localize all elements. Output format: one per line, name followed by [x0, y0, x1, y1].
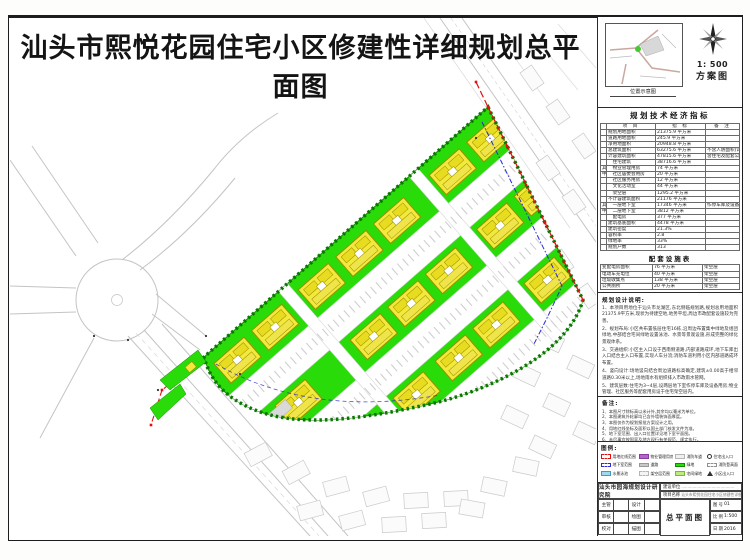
design-note: 4、竖向设计:场地竖向结合周边道路标高确定,建筑±0.00高于相邻道路0.30米… — [602, 369, 738, 382]
design-notes-section: 规划设计说明: 1、本项目用地位于汕头市龙湖区,东北侧临规划路,规划总用地面积2… — [598, 293, 742, 397]
legend-swatch — [601, 463, 611, 468]
sheet-title: 汕头市熙悦花园住宅小区修建性详细规划总平面图 — [18, 26, 583, 104]
project-value: 汕头市熙悦花园住宅小区修建性详细规划 — [681, 492, 741, 498]
field-row: 图 号 01 — [710, 499, 742, 511]
legend-item: 物业管理用房 — [639, 454, 673, 460]
site-location-dot — [635, 46, 641, 52]
field-row: 比 例 1:500 — [710, 511, 742, 523]
legend-item: 绿地 — [675, 462, 705, 468]
legend-label: 地下室范围 — [613, 462, 632, 468]
indicators-section: 规划技术经济指标 项 目 指 标 备 注 规划用地面积 21375.9 平方米 — [598, 108, 742, 293]
signature-row: 校对 描图 — [598, 523, 660, 535]
remarks-title: 备注: — [602, 399, 738, 407]
legend-label: 小区出入口 — [715, 471, 734, 477]
legend-label: 宅间绿地 — [687, 471, 703, 477]
legend-item: 消防车道 — [675, 454, 705, 460]
compass-icon — [698, 22, 728, 58]
legend-item: 宅间绿地 — [675, 471, 705, 477]
legend-label: 架空层范围 — [651, 471, 670, 477]
drawing-name: 总平面图 — [660, 499, 710, 536]
signature-row: 审核 绘图 — [598, 511, 660, 523]
legend-swatch — [675, 463, 685, 468]
roundabout — [76, 259, 158, 341]
owner-row: 建设单位 …………………………………… — [660, 483, 742, 491]
location-section: 位置示意图 1: 500 方案图 — [598, 17, 742, 108]
project-row: 项目名称 汕头市熙悦花园住宅小区修建性详细规划 — [660, 491, 742, 499]
legend-swatch — [639, 463, 649, 468]
indicator-row: 计容建筑面积 47815.6 平方米 含住宅及配套公建 详见说明 — [601, 153, 740, 159]
title-block: 汕头市园海规划设计研究院 建设单位 …………………………………… 项目名称 汕头… — [598, 483, 742, 536]
field-row: 日 期 2016 — [710, 523, 742, 535]
legend-swatch — [675, 471, 685, 476]
indicator-row: 规划户数 313 — [601, 245, 740, 251]
facilities-title: 配套设施表 — [600, 251, 740, 264]
minimap-caption: 位置示意图 — [610, 88, 676, 97]
legend-title: 图例: — [601, 444, 739, 452]
legend-item: 用地红线范围 — [601, 454, 637, 460]
legend-swatch — [707, 463, 717, 468]
legend-swatch — [639, 471, 649, 476]
legend-item: 道路 — [639, 462, 673, 468]
design-note: 5、建筑层数:住宅为3~4层,设两层地下室作停车库及设备用房;物业管理、社区服务… — [602, 384, 738, 397]
facilities-table: 变配电房面积 76 平方米 架空层 电动车充电位 40 平方米 架空层 垃圾收集… — [600, 264, 740, 289]
drawing-scale: 1: 500 — [697, 60, 728, 69]
legend-label: 用地红线范围 — [613, 454, 636, 460]
legend-item: 住宅出入口 — [707, 454, 741, 460]
right-panel: 位置示意图 1: 500 方案图 规划技术经济指标 项 目 指 标 — [597, 17, 742, 536]
legend-swatch — [601, 471, 611, 476]
signature-row: 主管 设计 — [598, 499, 660, 511]
indicators-title: 规划技术经济指标 — [600, 109, 740, 123]
design-note: 2、规划布局:小区共布置低层住宅16栋,沿周边布置集中绿地及组团绿地,中部结合宅… — [602, 327, 738, 346]
legend-section: 图例: 用地红线范围 物业管理用房 消防车道 — [598, 442, 742, 483]
legend-swatch — [707, 454, 712, 459]
legend-label: 消防登高面 — [719, 462, 738, 468]
legend-label: 道路 — [651, 462, 659, 468]
facility-row: 公共厕所 20 平方米 架空层 — [601, 283, 740, 289]
entrance-area — [150, 350, 206, 420]
legend-item: 地下室范围 — [601, 462, 637, 468]
legend-label: 物业管理用房 — [651, 454, 674, 460]
legend-label: 绿地 — [687, 462, 695, 468]
design-note: 3、交通组织:小区主入口设于西南侧道路,内部道路成环,地下车库出入口结合主入口布… — [602, 348, 738, 367]
legend-item: 架空层范围 — [639, 471, 673, 477]
legend-item: 水景泳池 — [601, 471, 637, 477]
design-institute: 汕头市园海规划设计研究院 — [598, 483, 660, 499]
legend-swatch — [639, 454, 649, 459]
legend-item: 小区出入口 — [707, 471, 741, 477]
drawing-type: 方案图 — [696, 69, 729, 82]
indicators-table: 项 目 指 标 备 注 规划用地面积 21375.9 平方米 — [600, 123, 740, 252]
legend-swatch — [675, 454, 685, 459]
design-note: 1、本项目用地位于汕头市龙湖区,东北侧临规划路,规划总用地面积21375.9平方… — [602, 306, 738, 325]
legend-swatch — [707, 471, 713, 476]
remarks-section: 备注: 1、本图尺寸除标高以米计外,其余均以毫米为单位。2、本图建筑外轮廓均已含… — [598, 397, 742, 442]
owner-value: …………………………………… — [681, 484, 734, 489]
legend-label: 水景泳池 — [613, 471, 629, 477]
indicator-row: 总建筑面积 63275.6 平方米 不含人防面积(详见说明) — [601, 147, 740, 153]
legend-item: 消防登高面 — [707, 462, 741, 468]
legend-label: 住宅出入口 — [714, 454, 733, 460]
legend-label: 消防车道 — [687, 454, 703, 460]
legend-swatch — [601, 454, 611, 459]
location-minimap — [605, 23, 683, 87]
design-notes-title: 规划设计说明: — [602, 296, 738, 304]
indicator-row: 其 一层地下室 17346 平方米 作停车库及设备用房 — [601, 202, 740, 208]
